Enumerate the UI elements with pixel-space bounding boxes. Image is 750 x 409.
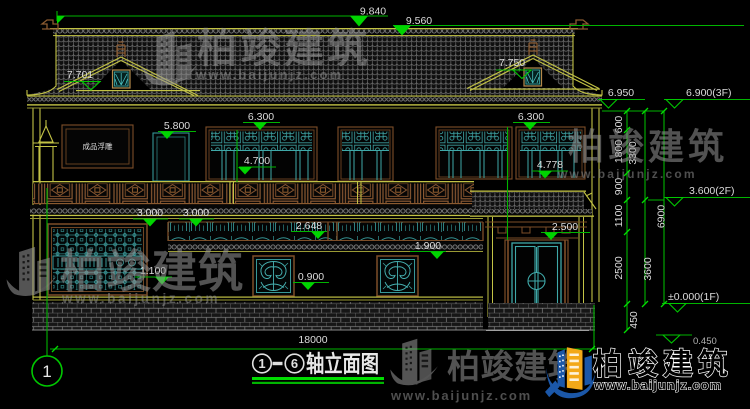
svg-text:9.560: 9.560 (406, 15, 432, 27)
svg-text:2500: 2500 (613, 256, 625, 280)
svg-text:柏竣建筑: 柏竣建筑 (568, 126, 728, 167)
svg-text:6.300: 6.300 (518, 111, 544, 123)
svg-text:7.750: 7.750 (499, 57, 525, 69)
svg-text:2.500: 2.500 (552, 221, 578, 233)
svg-text:6.950: 6.950 (608, 87, 634, 99)
svg-text:9.840: 9.840 (360, 6, 386, 18)
svg-text:3600: 3600 (642, 257, 654, 281)
svg-text:www.baijunjz.com: www.baijunjz.com (593, 378, 722, 393)
svg-text:3.000: 3.000 (183, 207, 209, 219)
svg-text:1.900: 1.900 (415, 240, 441, 252)
svg-text:柏竣建筑: 柏竣建筑 (197, 27, 371, 71)
svg-text:1: 1 (258, 356, 265, 371)
svg-text:轴立面图: 轴立面图 (306, 351, 379, 377)
svg-text:6.900(3F): 6.900(3F) (686, 87, 732, 99)
svg-text:柏竣建筑: 柏竣建筑 (60, 246, 244, 297)
svg-text:6900: 6900 (656, 205, 668, 229)
svg-text:1: 1 (42, 362, 51, 381)
svg-text:6.300: 6.300 (248, 111, 274, 123)
svg-text:www.baijunjz.com: www.baijunjz.com (195, 67, 343, 82)
svg-text:www.baijunjz.com: www.baijunjz.com (557, 167, 697, 181)
svg-text:0.450: 0.450 (693, 336, 717, 347)
svg-text:www.baijunjz.com: www.baijunjz.com (61, 291, 220, 306)
svg-text:4.700: 4.700 (244, 155, 270, 167)
svg-text:0.900: 0.900 (298, 271, 324, 283)
svg-text:柏竣建筑: 柏竣建筑 (593, 347, 733, 381)
svg-text:7.701: 7.701 (67, 69, 93, 81)
svg-text:成品浮雕: 成品浮雕 (83, 141, 113, 151)
svg-text:18000: 18000 (298, 334, 327, 346)
svg-text:3.600(2F): 3.600(2F) (689, 185, 735, 197)
svg-text:2.648: 2.648 (296, 220, 322, 232)
svg-text:±0.000(1F): ±0.000(1F) (668, 291, 719, 303)
svg-text:www.baijunjz.com: www.baijunjz.com (390, 388, 532, 403)
svg-text:6: 6 (291, 356, 298, 371)
svg-text:450: 450 (628, 311, 640, 329)
svg-text:1100: 1100 (613, 205, 625, 228)
svg-text:3.000: 3.000 (137, 207, 163, 219)
svg-text:5.800: 5.800 (164, 120, 190, 132)
